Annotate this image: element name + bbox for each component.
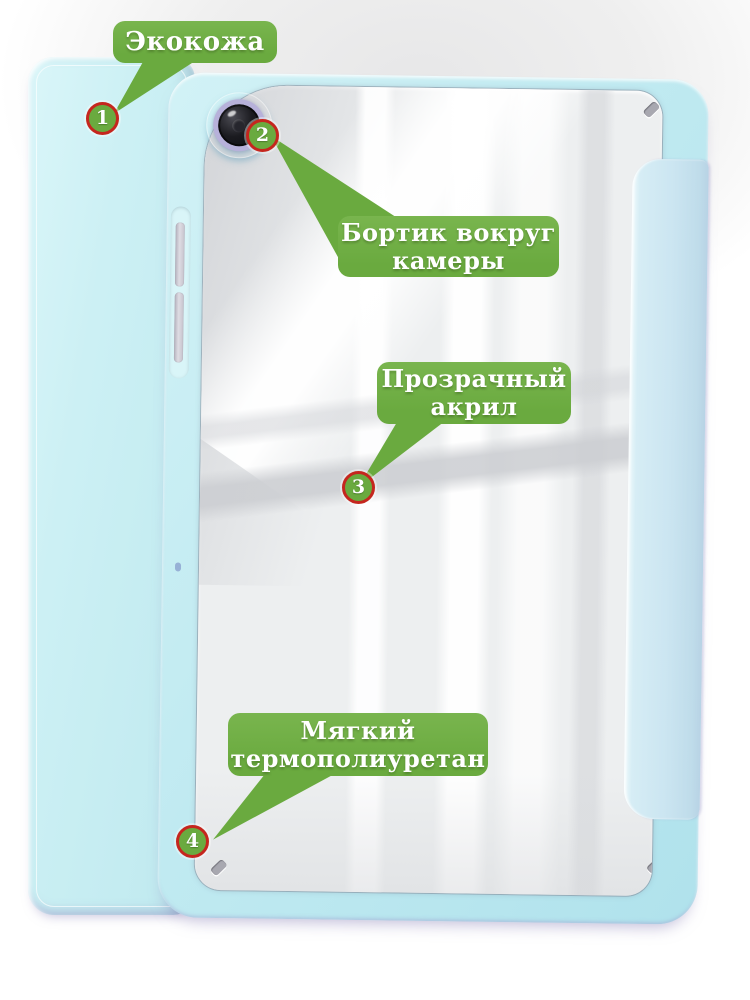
camera-lens-glint xyxy=(227,109,237,118)
callout-number-4: 4 xyxy=(176,825,209,858)
callout-bubble-acrylic: Прозрачный акрил xyxy=(377,362,571,424)
callout-number-2: 2 xyxy=(246,119,279,152)
volume-button xyxy=(174,292,184,362)
callout-bubble-ecoleather: Экокожа xyxy=(113,21,277,63)
callout-label: акрил xyxy=(431,393,518,421)
tablet-case-back xyxy=(157,72,709,924)
product-annotation-image: Экокожа 1 Бортик вокруг камеры 2 Прозрач… xyxy=(0,0,750,1000)
folded-cover-flap xyxy=(624,159,709,820)
callout-label: Мягкий xyxy=(301,717,416,745)
callout-label: Экокожа xyxy=(125,28,265,56)
callout-label: термополиуретан xyxy=(231,745,486,773)
camera-lens-center xyxy=(232,119,245,132)
microphone-hole xyxy=(175,562,181,571)
corner-slot xyxy=(643,101,661,119)
power-button xyxy=(175,222,185,286)
side-button-recess xyxy=(169,206,191,378)
callout-label: Бортик вокруг xyxy=(341,219,556,247)
callout-label: камеры xyxy=(392,247,505,275)
callout-number-1: 1 xyxy=(86,102,119,135)
callout-number-3: 3 xyxy=(342,471,375,504)
callout-bubble-camera-rim: Бортик вокруг камеры xyxy=(338,216,559,277)
callout-label: Прозрачный xyxy=(381,365,566,393)
callout-bubble-tpu: Мягкий термополиуретан xyxy=(228,713,488,776)
